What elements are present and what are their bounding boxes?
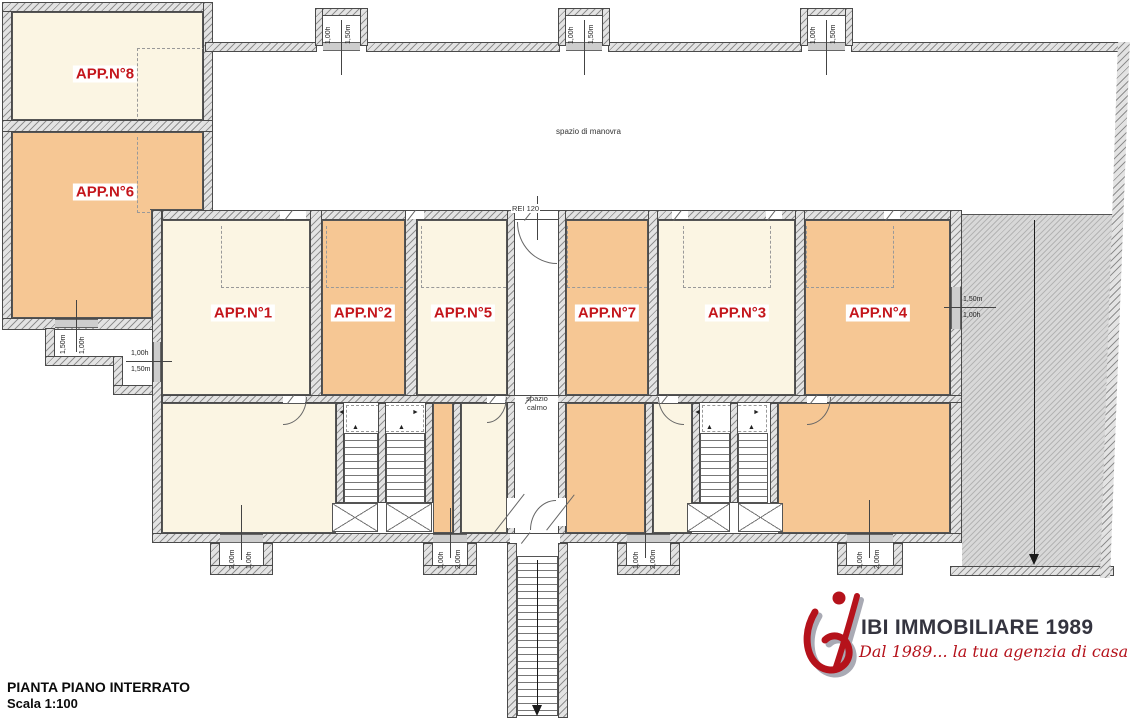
- door-opening: [406, 211, 424, 219]
- wall: [507, 210, 515, 543]
- wall: [2, 2, 213, 12]
- zone-label-calmo: spazio calmo: [520, 394, 554, 413]
- stair-direction-up-icon: ▲: [748, 424, 755, 431]
- dim-line: [869, 500, 870, 558]
- wall: [692, 403, 700, 503]
- window-well-wall: [423, 565, 477, 575]
- dim-line: [76, 300, 77, 352]
- light-well-wall: [360, 8, 368, 46]
- window-well-wall: [837, 565, 903, 575]
- dim-label: 1,00h: [963, 312, 981, 319]
- room-label-app2: APP.N°2: [331, 305, 395, 322]
- plan-title: PIANTA PIANO INTERRATO: [7, 679, 190, 695]
- dim-line: [584, 20, 585, 75]
- wall: [336, 403, 344, 503]
- stair-direction-left-icon: ◄: [338, 409, 345, 416]
- light-well-wall: [602, 8, 610, 46]
- room-app4-lower-fill: [778, 403, 950, 533]
- room-label-app7: APP.N°7: [575, 305, 639, 322]
- dim-label: 2,00m: [874, 543, 881, 569]
- dim-line: [537, 196, 538, 240]
- light-well-wall: [558, 8, 566, 46]
- room-label-app5: APP.N°5: [431, 305, 495, 322]
- dim-label: 1,50m: [830, 16, 837, 44]
- window: [951, 287, 961, 329]
- ramp: [962, 214, 1118, 569]
- dim-label: 1,50m: [963, 296, 982, 303]
- dashed-projection: [567, 226, 647, 288]
- wall: [405, 210, 417, 403]
- dim-line: [826, 20, 827, 75]
- door-opening: [884, 211, 900, 219]
- door-opening: [558, 498, 566, 526]
- dim-label: 1,00h: [810, 16, 817, 44]
- wall: [608, 42, 802, 52]
- wall: [366, 42, 560, 52]
- wall: [507, 543, 517, 718]
- wall: [645, 403, 653, 543]
- dim-label: 1,00h: [633, 543, 640, 569]
- room-app6-fill: [12, 132, 152, 318]
- ibi-immobiliare-logo: IBI IMMOBILIARE 1989 Dal 1989... la tua …: [795, 584, 1105, 680]
- stair-direction-up-icon: ▲: [706, 424, 713, 431]
- door-opening: [766, 211, 782, 219]
- dim-line: [944, 307, 996, 308]
- zone-label-rei: REI 120: [511, 204, 540, 213]
- light-well-wall: [800, 8, 808, 46]
- wall: [378, 403, 386, 503]
- dim-line: [241, 505, 242, 560]
- staircase: [738, 433, 768, 503]
- door-opening: [672, 211, 688, 219]
- dim-label: 1,00h: [857, 543, 864, 569]
- ibi-logo-monogram-icon: [797, 586, 867, 680]
- door-opening: [280, 211, 306, 219]
- door-opening: [510, 534, 560, 543]
- dashed-projection: [137, 137, 205, 213]
- window-well-wall: [617, 565, 680, 575]
- stair-direction-up-icon: ▲: [398, 424, 405, 431]
- ramp-direction-line: [1034, 220, 1035, 556]
- room-label-app6: APP.N°6: [73, 184, 137, 201]
- wall: [558, 543, 568, 718]
- window: [153, 342, 161, 382]
- logo-company-name: IBI IMMOBILIARE 1989: [861, 616, 1093, 640]
- wall: [425, 403, 433, 503]
- dim-label: 1,00h: [79, 326, 86, 354]
- dim-line: [126, 361, 172, 362]
- wall: [205, 42, 317, 52]
- dim-label: 1,00h: [438, 543, 445, 569]
- door-opening: [507, 498, 515, 528]
- dim-label: 1,50m: [60, 326, 67, 354]
- dim-line: [645, 508, 646, 558]
- dim-line: [450, 508, 451, 558]
- wall: [648, 210, 658, 403]
- wall: [558, 210, 566, 543]
- dim-line: [341, 20, 342, 75]
- zone-label-manovra: spazio di manovra: [556, 127, 621, 137]
- wall: [950, 566, 1114, 576]
- wall: [2, 2, 12, 330]
- wall: [730, 403, 738, 503]
- stair-down-line: [537, 560, 538, 708]
- room-app5-lower-fill: [461, 403, 507, 533]
- stair-landing: [332, 503, 378, 532]
- wall: [310, 210, 322, 403]
- room-app7-lower-fill: [566, 403, 645, 533]
- room-label-app8: APP.N°8: [73, 66, 137, 83]
- logo-tagline: Dal 1989... la tua agenzia di casa: [859, 642, 1128, 661]
- wall: [851, 42, 1124, 52]
- dashed-projection: [221, 226, 309, 288]
- wall: [795, 210, 805, 403]
- window-well-wall: [210, 565, 273, 575]
- dim-label: 1,00h: [131, 350, 149, 357]
- stair-landing: [386, 503, 432, 532]
- plan-scale: Scala 1:100: [7, 696, 78, 711]
- dim-label: 1,00h: [325, 16, 332, 44]
- room-label-app4: APP.N°4: [846, 305, 910, 322]
- corridor-spazio-calmo: [515, 220, 558, 543]
- wall: [45, 356, 122, 366]
- dashed-projection: [421, 226, 506, 288]
- dim-label: 1,50m: [588, 16, 595, 44]
- dashed-projection: [137, 48, 205, 122]
- dim-label: 1,50m: [345, 16, 352, 44]
- room-label-app1: APP.N°1: [211, 305, 275, 322]
- window: [627, 534, 670, 543]
- staircase: [700, 433, 730, 503]
- wall: [162, 395, 962, 403]
- stair-direction-right-icon: ►: [412, 409, 419, 416]
- wall: [770, 403, 778, 503]
- room-app1-lower-fill: [162, 403, 336, 533]
- wall: [2, 120, 213, 132]
- wall: [950, 210, 962, 543]
- dim-label: 1,00h: [246, 543, 253, 569]
- dim-label: 2,00m: [455, 543, 462, 569]
- staircase: [386, 433, 425, 503]
- room-label-app3: APP.N°3: [705, 305, 769, 322]
- stair-direction-left-icon: ◄: [694, 409, 701, 416]
- dim-label: 2,00m: [650, 543, 657, 569]
- window: [847, 534, 893, 543]
- dashed-projection: [683, 226, 771, 288]
- floor-plan: ◄ ► ▲ ▲ ◄ ► ▲ ▲ 1,00h 1,50m 1,00h 1,50m …: [0, 0, 1134, 720]
- stair-landing: [738, 503, 783, 532]
- stair-direction-right-icon: ►: [753, 409, 760, 416]
- staircase: [344, 433, 378, 503]
- stair-landing: [687, 503, 730, 532]
- light-well-wall: [845, 8, 853, 46]
- dim-label: 2,00m: [229, 543, 236, 569]
- dashed-projection: [806, 226, 894, 288]
- stair-down-arrow-icon: [532, 705, 542, 720]
- stair-direction-up-icon: ▲: [352, 424, 359, 431]
- dim-label: 1,00h: [568, 16, 575, 44]
- dim-label: 1,50m: [131, 366, 150, 373]
- dashed-projection: [326, 226, 403, 288]
- wall: [203, 2, 213, 218]
- light-well-wall: [315, 8, 323, 46]
- wall: [453, 403, 461, 543]
